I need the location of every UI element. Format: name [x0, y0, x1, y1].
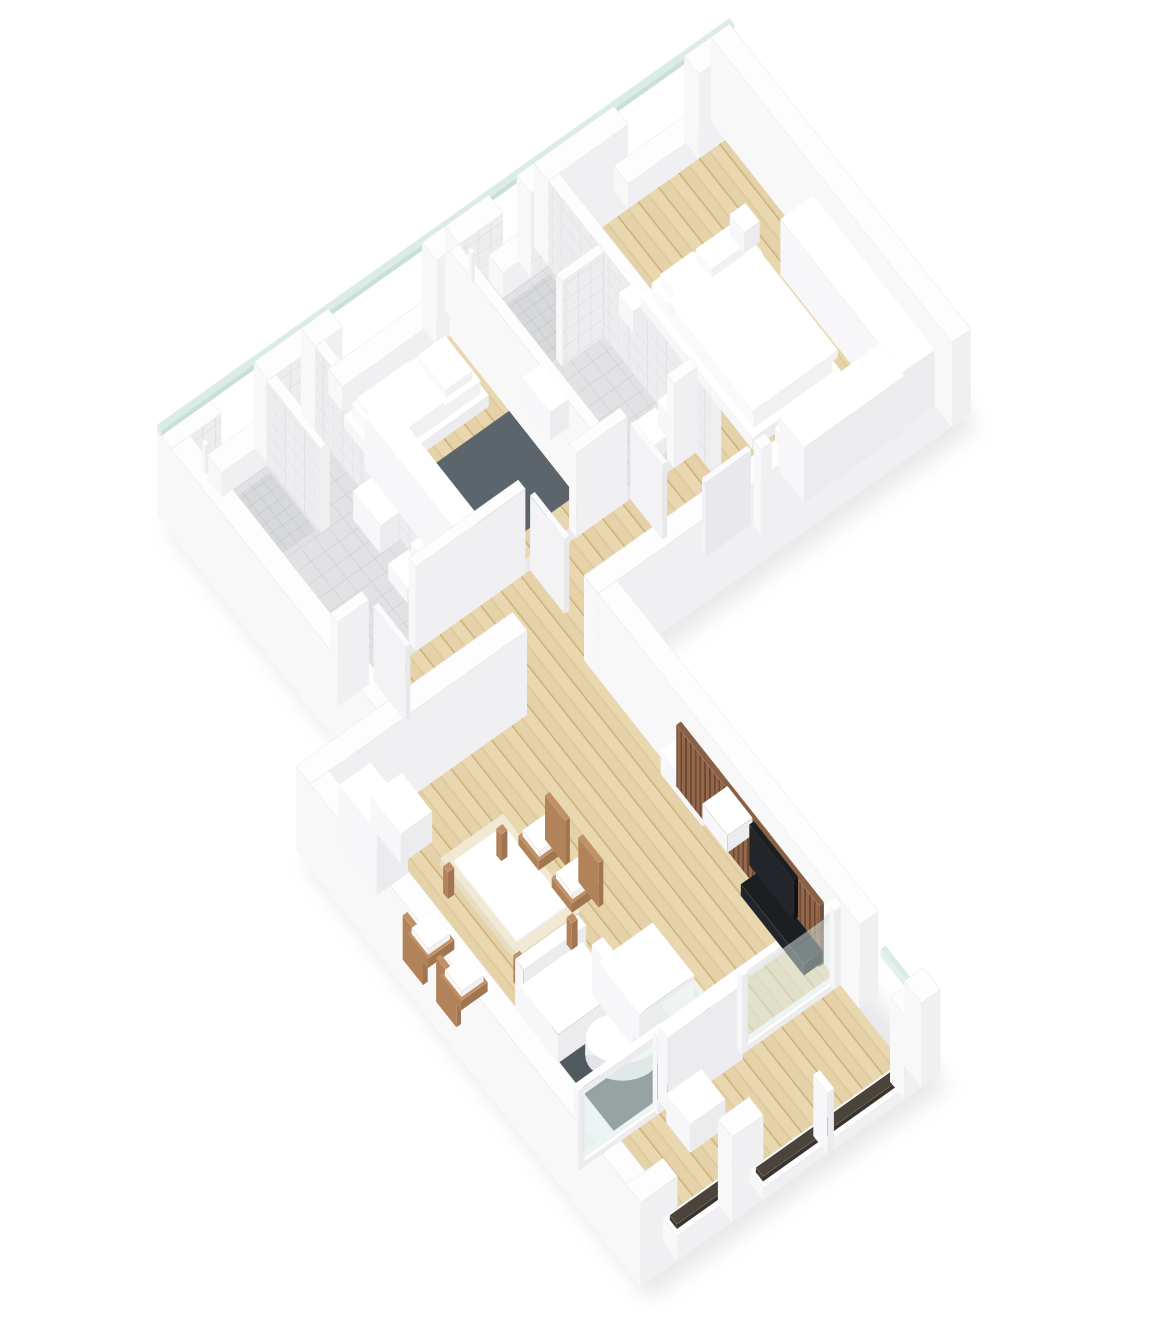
- ne-facade-wing-b: [904, 968, 940, 1088]
- floorplan-stage: [0, 0, 1170, 1332]
- hall-nw-wall-d: [667, 358, 698, 468]
- wall-bathroom1-master-b: [754, 433, 772, 534]
- dining-table-leg-d: [567, 913, 578, 950]
- balcony-partition-post-d: [830, 900, 841, 989]
- dining-table-leg-b: [496, 824, 507, 861]
- front-facade-b: [718, 1097, 764, 1222]
- dining-table-leg-a: [443, 862, 454, 899]
- bathroom2-shower-head: [202, 439, 208, 474]
- bathroom1-shower-head: [469, 248, 475, 283]
- isometric-floorplan-render: [0, 0, 1170, 1332]
